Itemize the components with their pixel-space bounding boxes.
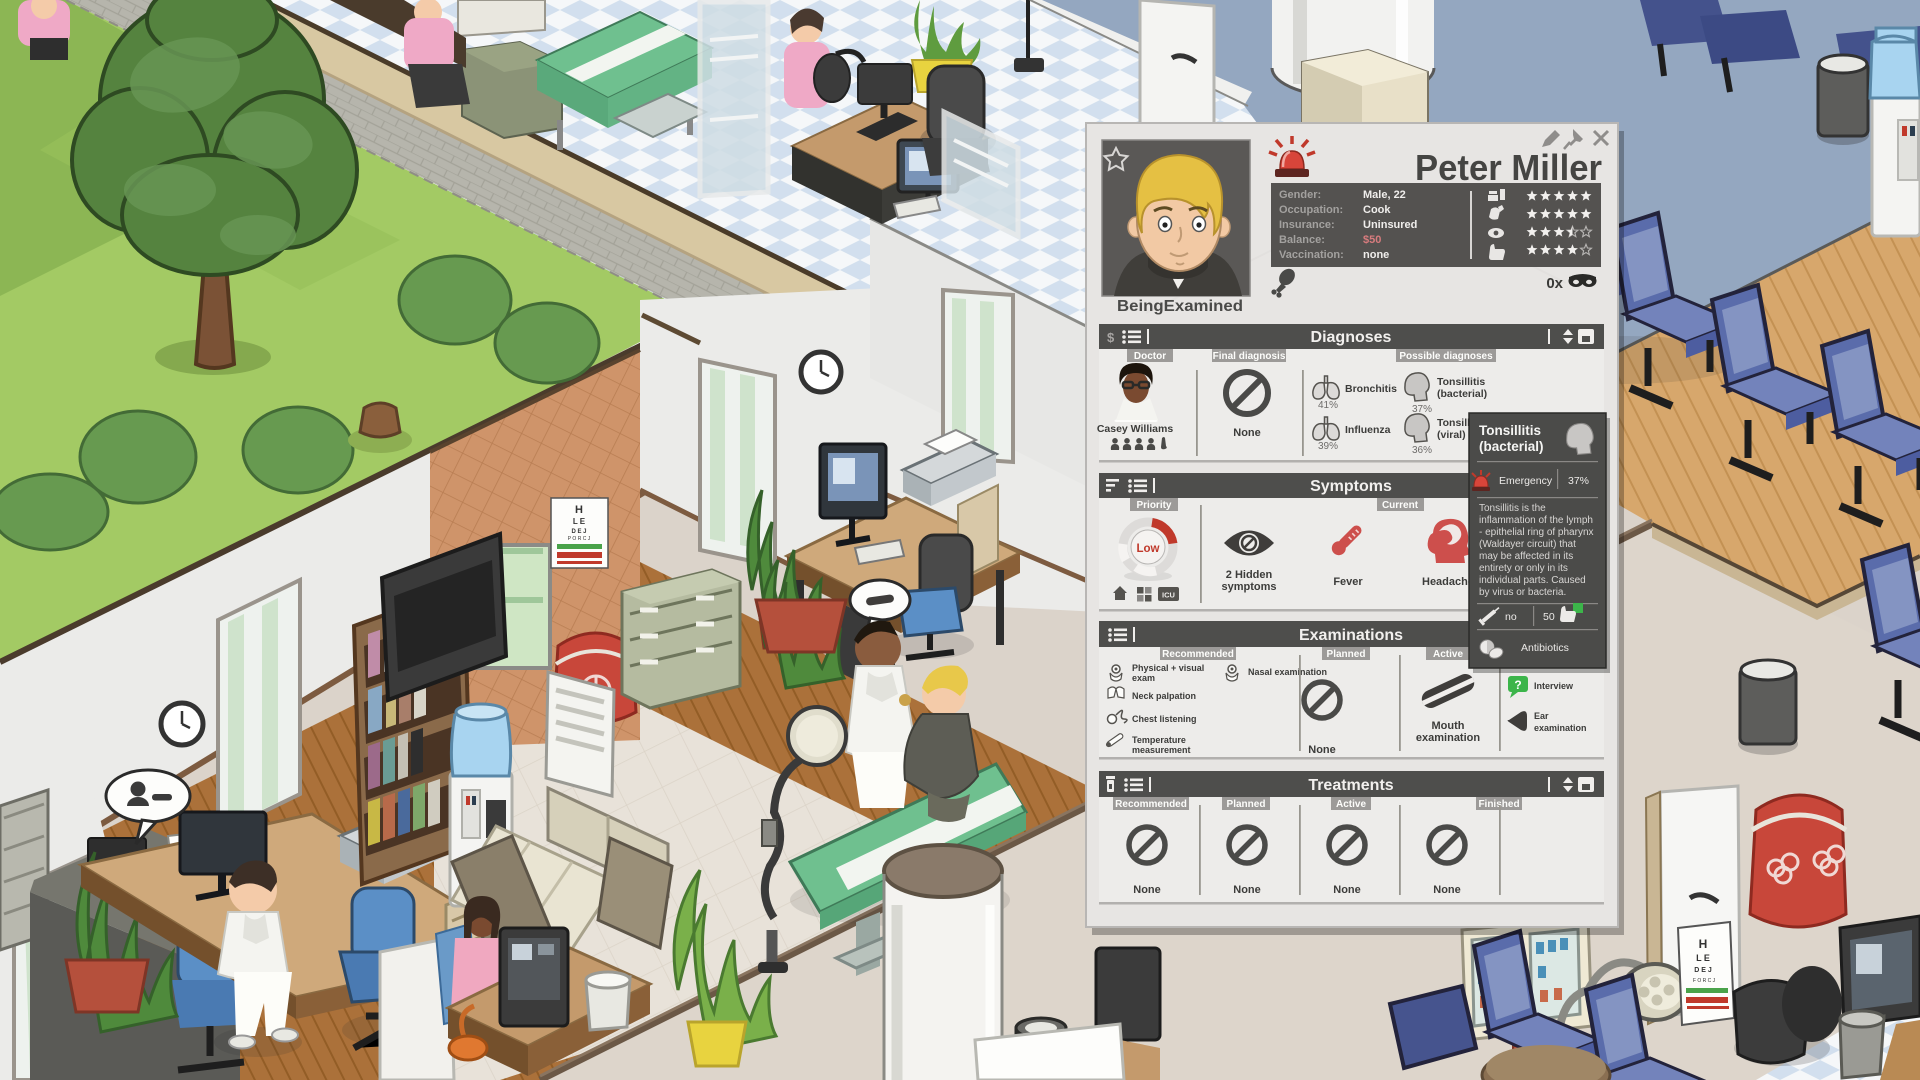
svg-text:measurement: measurement <box>1132 745 1191 755</box>
svg-text:Vaccination:: Vaccination: <box>1279 249 1344 261</box>
svg-text:37%: 37% <box>1568 475 1589 487</box>
svg-text:Planned: Planned <box>1227 799 1266 810</box>
svg-text:Gender:: Gender: <box>1279 189 1321 201</box>
svg-text:Male, 22: Male, 22 <box>1363 189 1406 201</box>
svg-text:$: $ <box>1107 330 1115 345</box>
svg-text:Emergency: Emergency <box>1499 475 1553 487</box>
svg-text:Insurance:: Insurance: <box>1279 219 1335 231</box>
svg-text:Tonsillitis: Tonsillitis <box>1437 376 1485 388</box>
svg-text:Casey Williams: Casey Williams <box>1097 423 1174 435</box>
svg-text:H: H <box>575 504 583 516</box>
svg-text:Diagnoses: Diagnoses <box>1311 329 1392 346</box>
svg-text:Interview: Interview <box>1534 681 1574 691</box>
svg-text:individual parts. Caused: individual parts. Caused <box>1479 575 1586 586</box>
svg-text:$50: $50 <box>1363 234 1381 246</box>
svg-text:- epithelial ring of pharynx: - epithelial ring of pharynx <box>1479 527 1594 538</box>
svg-text:H: H <box>1699 937 1708 951</box>
svg-text:Influenza: Influenza <box>1345 424 1391 436</box>
svg-text:D E J: D E J <box>1694 967 1712 974</box>
svg-text:entirety or only in its: entirety or only in its <box>1479 563 1568 574</box>
svg-text:Occupation:: Occupation: <box>1279 204 1343 216</box>
svg-text:Chest listening: Chest listening <box>1132 714 1197 724</box>
svg-text:L E: L E <box>1696 953 1710 963</box>
svg-text:symptoms: symptoms <box>1221 581 1276 593</box>
svg-text:inflammation of the lymph: inflammation of the lymph <box>1479 515 1593 526</box>
svg-text:50: 50 <box>1543 611 1555 623</box>
svg-text:None: None <box>1433 884 1461 896</box>
svg-text:37%: 37% <box>1412 404 1432 415</box>
svg-text:Balance:: Balance: <box>1279 234 1325 246</box>
svg-text:D E J: D E J <box>571 529 586 535</box>
svg-text:BeingExamined: BeingExamined <box>1117 298 1243 315</box>
svg-text:Mouth: Mouth <box>1432 720 1465 732</box>
svg-text:examination: examination <box>1534 723 1587 733</box>
svg-text:Final diagnosis: Final diagnosis <box>1213 351 1286 362</box>
svg-text:Ear: Ear <box>1534 711 1549 721</box>
svg-text:Treatments: Treatments <box>1308 777 1393 794</box>
svg-text:Examinations: Examinations <box>1299 627 1403 644</box>
svg-text:ICU: ICU <box>1162 591 1175 600</box>
svg-text:Recommended: Recommended <box>1162 649 1234 660</box>
svg-text:2 Hidden: 2 Hidden <box>1226 569 1273 581</box>
svg-text:Low: Low <box>1137 543 1160 555</box>
svg-text:no: no <box>1505 611 1517 623</box>
svg-text:none: none <box>1363 249 1389 261</box>
svg-text:Fever: Fever <box>1333 576 1363 588</box>
svg-text:0x: 0x <box>1546 275 1563 292</box>
svg-text:Planned: Planned <box>1327 649 1366 660</box>
svg-text:Uninsured: Uninsured <box>1363 219 1417 231</box>
svg-text:Active: Active <box>1433 649 1463 660</box>
svg-text:Tonsillitis is the: Tonsillitis is the <box>1479 503 1546 514</box>
svg-text:Active: Active <box>1336 799 1366 810</box>
svg-text:by virus or bacteria.: by virus or bacteria. <box>1479 587 1566 598</box>
svg-text:?: ? <box>1514 678 1521 692</box>
svg-text:(bacterial): (bacterial) <box>1479 439 1544 454</box>
svg-text:None: None <box>1333 884 1361 896</box>
svg-text:Tonsillitis: Tonsillitis <box>1479 423 1541 438</box>
svg-text:Possible diagnoses: Possible diagnoses <box>1399 351 1493 362</box>
svg-text:exam: exam <box>1132 673 1155 683</box>
svg-text:(viral): (viral) <box>1437 429 1466 441</box>
svg-text:None: None <box>1233 427 1261 439</box>
svg-text:41%: 41% <box>1318 400 1338 411</box>
svg-text:Peter Miller: Peter Miller <box>1415 147 1602 188</box>
svg-text:Neck palpation: Neck palpation <box>1132 691 1196 701</box>
svg-text:Priority: Priority <box>1136 500 1171 511</box>
svg-text:Bronchitis: Bronchitis <box>1345 383 1397 395</box>
svg-text:Current: Current <box>1382 500 1419 511</box>
svg-text:Temperature: Temperature <box>1132 735 1186 745</box>
svg-text:Antibiotics: Antibiotics <box>1521 642 1569 654</box>
svg-text:None: None <box>1133 884 1161 896</box>
svg-text:36%: 36% <box>1412 445 1432 456</box>
svg-text:Nasal examination: Nasal examination <box>1248 667 1327 677</box>
svg-text:Doctor: Doctor <box>1134 351 1166 362</box>
svg-text:Headache: Headache <box>1422 576 1474 588</box>
svg-text:Cook: Cook <box>1363 204 1391 216</box>
svg-text:None: None <box>1308 744 1336 756</box>
svg-text:L E: L E <box>573 517 586 526</box>
svg-text:39%: 39% <box>1318 441 1338 452</box>
svg-text:(Waldayer circuit) that: (Waldayer circuit) that <box>1479 539 1576 550</box>
svg-text:P O R C J: P O R C J <box>568 536 591 542</box>
svg-text:(bacterial): (bacterial) <box>1437 388 1487 400</box>
svg-text:Physical + visual: Physical + visual <box>1132 663 1204 673</box>
svg-text:may be affected in its: may be affected in its <box>1479 551 1573 562</box>
svg-text:examination: examination <box>1416 732 1480 744</box>
svg-text:Tonsill: Tonsill <box>1437 417 1470 429</box>
svg-text:Recommended: Recommended <box>1115 799 1187 810</box>
svg-text:Symptoms: Symptoms <box>1310 478 1392 495</box>
svg-text:None: None <box>1233 884 1261 896</box>
svg-text:F O R C J: F O R C J <box>1693 978 1716 984</box>
